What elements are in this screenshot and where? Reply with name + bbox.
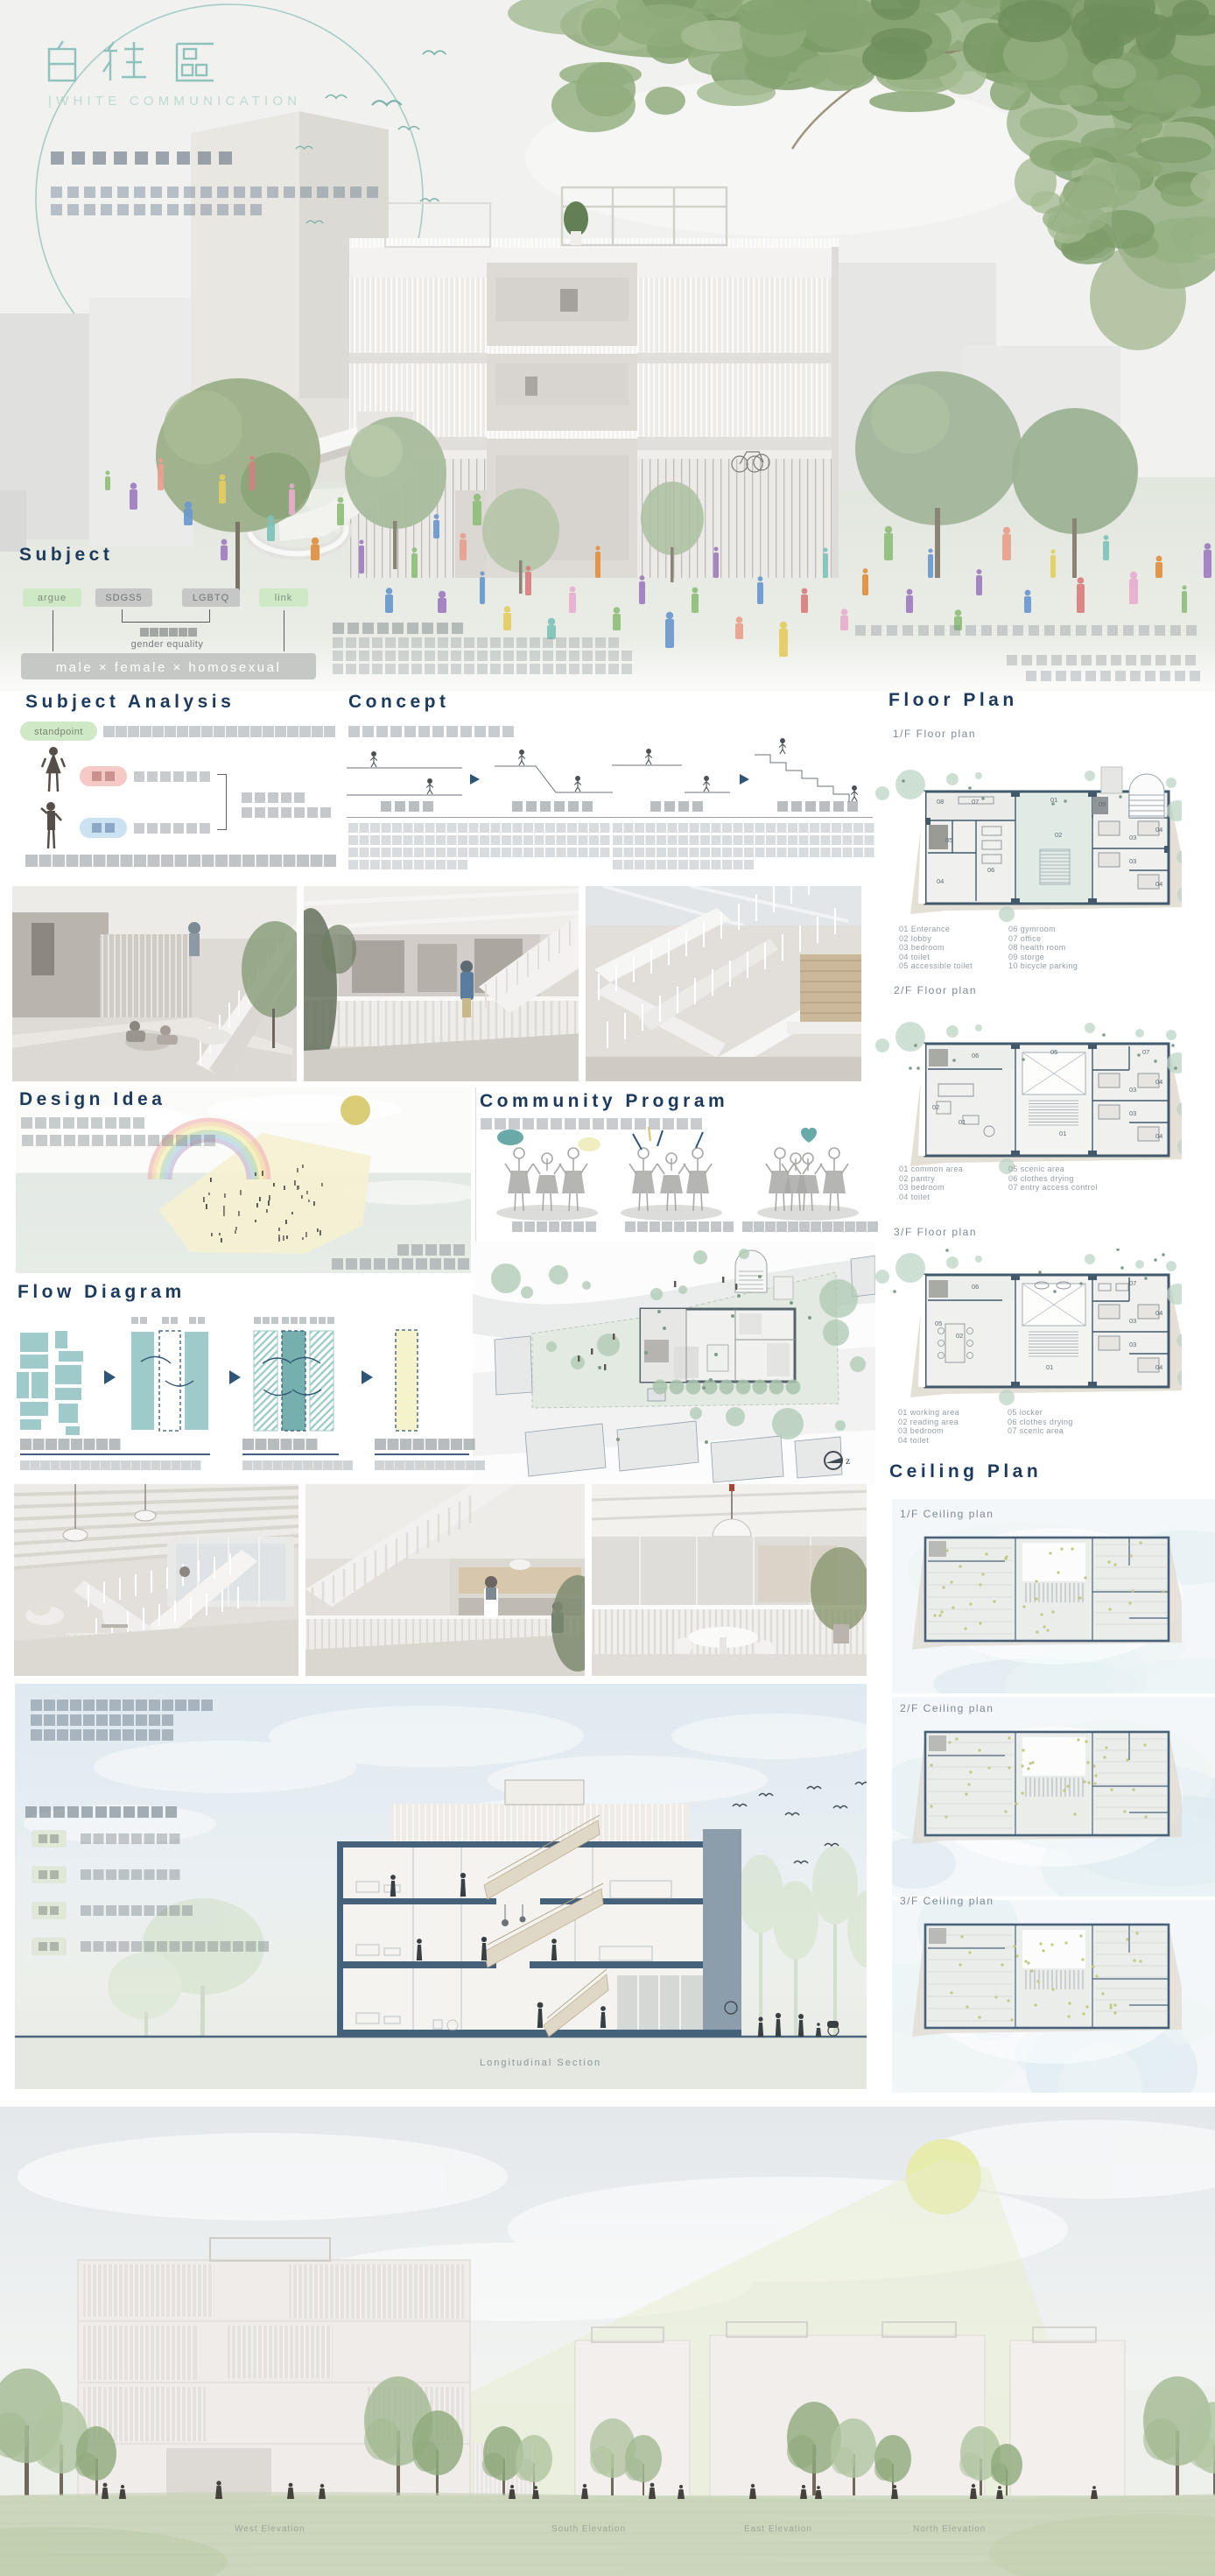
svg-text:04: 04 [1155,1132,1162,1140]
svg-text:03: 03 [1129,857,1136,865]
svg-text:06: 06 [972,1052,979,1059]
svg-text:06: 06 [987,866,994,874]
svg-text:02: 02 [932,1103,939,1111]
svg-text:01: 01 [1046,1363,1053,1371]
svg-text:05: 05 [945,836,952,844]
svg-text:04: 04 [1155,1363,1162,1371]
svg-text:04: 04 [1155,1309,1162,1317]
svg-text:06: 06 [972,1283,979,1291]
svg-text:07: 07 [972,798,979,806]
svg-text:03: 03 [1129,1341,1136,1348]
svg-text:03: 03 [1129,834,1136,841]
svg-text:04: 04 [937,877,944,885]
svg-text:03: 03 [1129,1086,1136,1094]
svg-text:08: 08 [937,798,944,806]
svg-text:z: z [846,1454,850,1467]
svg-text:02: 02 [956,1332,963,1340]
svg-text:05: 05 [1050,1048,1057,1056]
svg-text:04: 04 [1155,880,1162,888]
svg-text:01: 01 [1059,1130,1066,1137]
svg-text:05: 05 [935,1320,942,1327]
svg-text:03: 03 [1129,1317,1136,1325]
svg-text:07: 07 [1142,1048,1149,1056]
svg-text:04: 04 [1155,826,1162,834]
svg-text:07: 07 [1129,1279,1136,1287]
svg-text:04: 04 [1155,1078,1162,1086]
svg-text:09: 09 [1099,800,1106,808]
svg-text:03: 03 [1129,1109,1136,1117]
svg-text:01: 01 [959,1118,966,1126]
svg-text:02: 02 [1055,831,1062,839]
